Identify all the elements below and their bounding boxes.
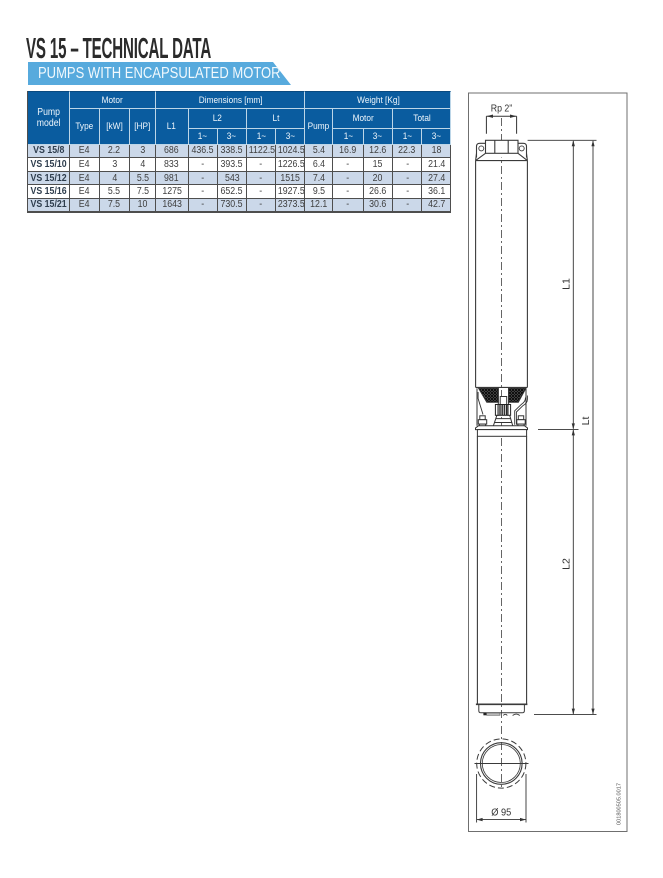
svg-text:L2: L2 (560, 558, 572, 570)
svg-text:Rp 2”: Rp 2” (491, 104, 513, 115)
svg-text:L1: L1 (560, 278, 572, 290)
svg-text:Lt: Lt (580, 417, 592, 426)
svg-text:001800505.0017: 001800505.0017 (617, 783, 623, 825)
svg-text:Ø 95: Ø 95 (491, 808, 511, 819)
